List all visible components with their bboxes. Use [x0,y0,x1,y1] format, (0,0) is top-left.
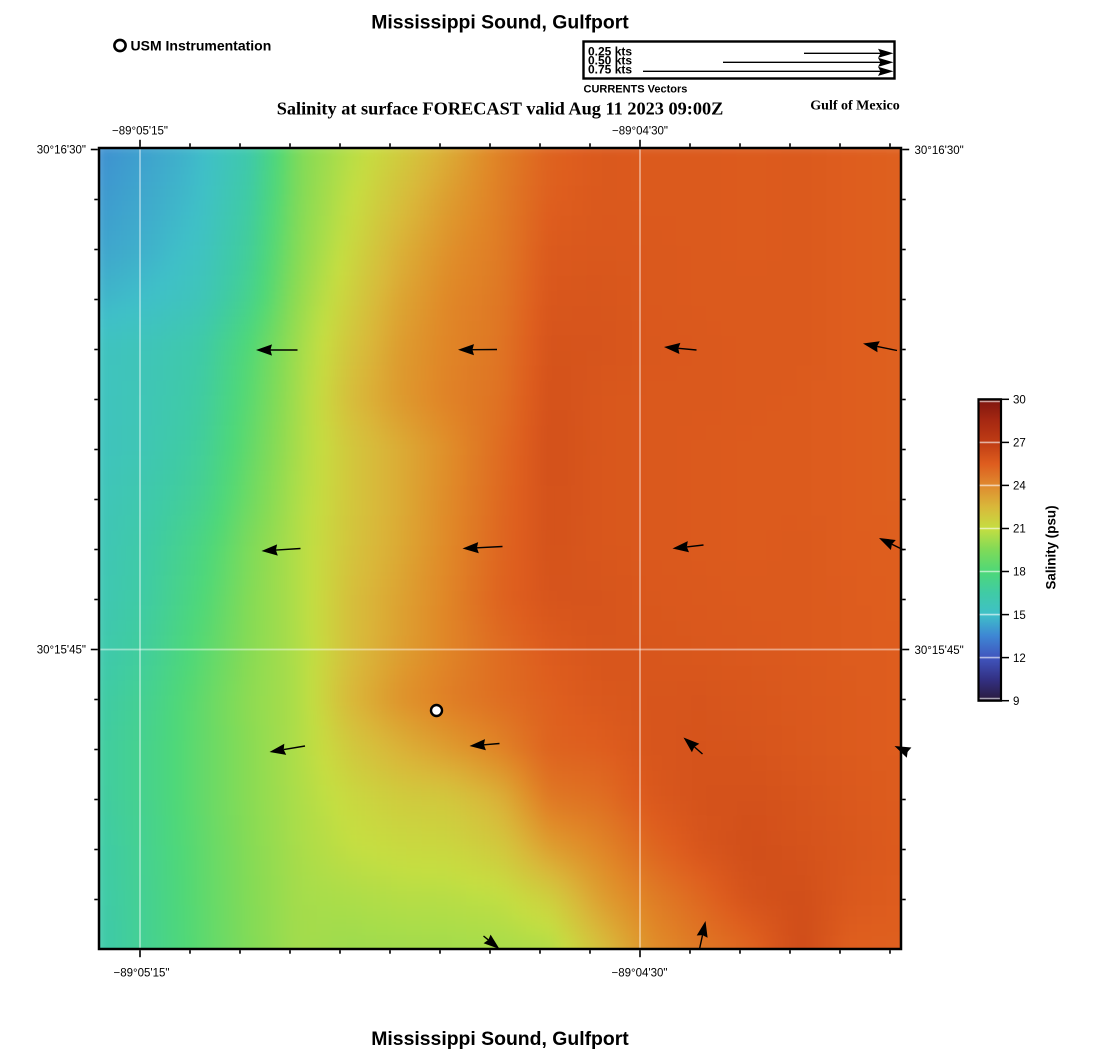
svg-text:CURRENTS Vectors: CURRENTS Vectors [584,84,688,96]
svg-text:−89°05'15": −89°05'15" [114,968,170,980]
svg-text:USM Instrumentation: USM Instrumentation [131,38,272,54]
svg-text:30°16'30": 30°16'30" [37,145,86,157]
svg-text:30°15'45": 30°15'45" [915,645,964,657]
svg-text:0.75 kts: 0.75 kts [588,62,632,76]
svg-text:Gulf of Mexico: Gulf of Mexico [810,99,899,114]
svg-text:−89°04'30": −89°04'30" [612,126,668,138]
svg-text:12: 12 [1013,653,1026,665]
svg-text:21: 21 [1013,524,1026,536]
svg-text:Salinity (psu): Salinity (psu) [1043,505,1058,589]
svg-text:9: 9 [1013,696,1019,708]
svg-text:30°16'30": 30°16'30" [915,145,964,157]
svg-text:Mississippi Sound, Gulfport: Mississippi Sound, Gulfport [371,1028,629,1050]
svg-text:−89°05'15": −89°05'15" [112,126,168,138]
svg-text:27: 27 [1013,438,1026,450]
svg-text:24: 24 [1013,481,1026,493]
svg-text:18: 18 [1013,567,1026,579]
svg-text:30°15'45": 30°15'45" [37,645,86,657]
svg-text:30: 30 [1013,395,1026,407]
svg-text:15: 15 [1013,610,1026,622]
svg-text:Salinity at surface FORECAST v: Salinity at surface FORECAST valid Aug 1… [277,99,724,119]
svg-text:Mississippi Sound, Gulfport: Mississippi Sound, Gulfport [371,12,629,34]
svg-text:−89°04'30": −89°04'30" [612,968,668,980]
